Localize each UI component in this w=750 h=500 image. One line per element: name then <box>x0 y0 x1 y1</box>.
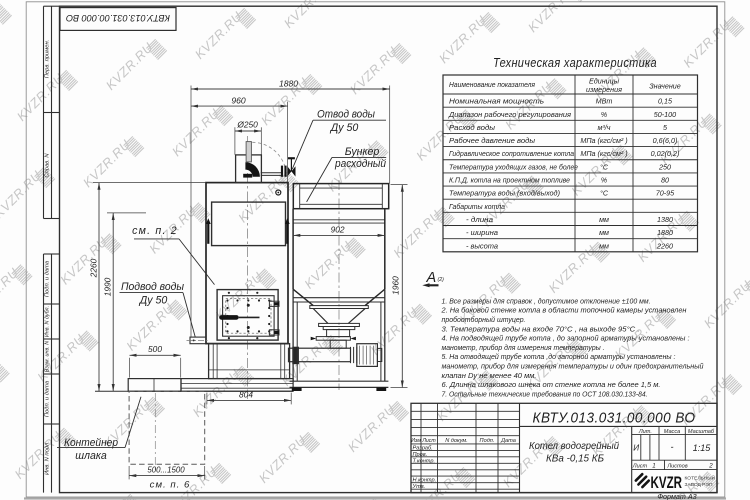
svg-text:ЗАВОД РЭП: ЗАВОД РЭП <box>685 482 713 488</box>
svg-text:Разраб.: Разраб. <box>413 445 433 451</box>
svg-text:мм: мм <box>599 215 609 224</box>
svg-text:Подп.: Подп. <box>480 438 495 444</box>
svg-text:%: % <box>601 176 608 185</box>
svg-text:расходный: расходный <box>334 158 386 170</box>
svg-text:Техническая характеристика: Техническая характеристика <box>493 55 657 70</box>
svg-text:А: А <box>426 270 437 286</box>
svg-text:500...1500: 500...1500 <box>147 465 185 474</box>
svg-text:МПа (кгс/см² ): МПа (кгс/см² ) <box>580 136 627 145</box>
svg-text:Инв. N дубл.: Инв. N дубл. <box>45 306 51 337</box>
svg-text:250: 250 <box>658 162 671 171</box>
svg-text:50-100: 50-100 <box>654 110 676 119</box>
svg-text:Рабочее давление воды: Рабочее давление воды <box>449 136 536 145</box>
svg-text:°С: °С <box>600 162 609 171</box>
svg-text:Изм: Изм <box>411 438 421 444</box>
svg-text:Ø250: Ø250 <box>236 120 258 130</box>
svg-text:Масса: Масса <box>664 429 681 435</box>
svg-text:0,6(6,0): 0,6(6,0) <box>653 136 678 145</box>
svg-text:Перв. примен.: Перв. примен. <box>45 40 51 79</box>
svg-text:К.П.Д. котла на проектном топл: К.П.Д. котла на проектном топливе <box>449 176 570 185</box>
svg-text:902: 902 <box>331 225 345 235</box>
svg-text:4. На подводящей трубе котла: 4. На подводящей трубе котла , до запорн… <box>442 334 690 343</box>
svg-text:1:15: 1:15 <box>693 443 712 453</box>
svg-text:Подп. и дата: Подп. и дата <box>45 380 51 417</box>
svg-text:- высота: - высота <box>466 241 498 250</box>
svg-text:%: % <box>601 110 608 119</box>
svg-text:Гидравлическое сопротивление к: Гидравлическое сопротивление котла <box>449 149 574 158</box>
svg-text:Габариты котла: Габариты котла <box>449 202 505 211</box>
svg-text:МПа (кгс/см² ): МПа (кгс/см² ) <box>580 149 627 158</box>
svg-text:°С: °С <box>600 189 609 198</box>
svg-text:пробоотборный штуцер.: пробоотборный штуцер. <box>442 315 526 324</box>
svg-text:1960: 1960 <box>390 276 400 295</box>
svg-text:мм: мм <box>599 241 609 250</box>
svg-text:-: - <box>671 442 674 452</box>
svg-text:МВт: МВт <box>596 97 613 106</box>
svg-text:см. п. 2: см. п. 2 <box>132 225 178 237</box>
svg-text:Температура уходящих газов, не: Температура уходящих газов, не более <box>449 162 578 171</box>
svg-text:Дата: Дата <box>500 438 516 444</box>
svg-text:Утв.: Утв. <box>412 484 426 490</box>
svg-text:клапан Dу не менее 40 мм.: клапан Dу не менее 40 мм. <box>442 371 537 380</box>
svg-text:804: 804 <box>239 390 253 400</box>
svg-text:2: 2 <box>708 463 713 470</box>
svg-text:1380: 1380 <box>657 215 673 224</box>
svg-text:Справ. N: Справ. N <box>45 153 51 178</box>
svg-text:KVZR: KVZR <box>651 474 683 492</box>
svg-text:0,15: 0,15 <box>658 97 673 106</box>
svg-text:КВа -0,15 КБ: КВа -0,15 КБ <box>546 454 604 465</box>
svg-text:Масштаб: Масштаб <box>688 429 715 435</box>
svg-text:2260: 2260 <box>656 241 673 250</box>
svg-text:мм: мм <box>599 228 609 237</box>
svg-text:Подп. и дата: Подп. и дата <box>45 260 51 297</box>
svg-text:Диапазон рабочего регулировани: Диапазон рабочего регулирования <box>448 110 571 119</box>
svg-text:960: 960 <box>231 95 246 105</box>
svg-text:м³/ч: м³/ч <box>597 123 610 132</box>
svg-text:- ширина: - ширина <box>466 228 498 237</box>
svg-text:см. п. 6: см. п. 6 <box>150 480 191 491</box>
svg-text:Пров.: Пров. <box>413 452 428 458</box>
svg-text:1880: 1880 <box>279 78 298 88</box>
svg-text:Лит.: Лит. <box>638 429 652 435</box>
svg-text:Наименование показателя: Наименование показателя <box>449 80 535 89</box>
svg-text:Подвод воды: Подвод воды <box>121 281 184 293</box>
svg-text:80: 80 <box>661 176 669 185</box>
svg-text:Расход воды: Расход воды <box>449 123 496 132</box>
svg-text:70-95: 70-95 <box>656 189 675 198</box>
svg-text:Т.контр.: Т.контр. <box>413 458 436 464</box>
svg-text:Номинальная мощность: Номинальная мощность <box>449 97 544 106</box>
svg-text:- длина: - длина <box>466 215 493 224</box>
svg-text:2260: 2260 <box>88 258 98 278</box>
svg-text:Формат А3: Формат А3 <box>657 492 696 500</box>
svg-text:Бункер: Бункер <box>345 146 380 158</box>
svg-text:5. На отводящей трубе котла ,: 5. На отводящей трубе котла ,до запорной… <box>442 352 676 361</box>
svg-text:Котел водогрейный: Котел водогрейный <box>529 441 619 452</box>
svg-text:Ду 50: Ду 50 <box>139 294 168 306</box>
svg-text:Лист: Лист <box>632 463 648 469</box>
svg-text:7. Остальные технические треб: 7. Остальные технические требования по О… <box>442 389 648 398</box>
svg-text:Ду 50: Ду 50 <box>330 122 359 134</box>
svg-text:Лист: Лист <box>421 438 436 444</box>
svg-text:Контейнер: Контейнер <box>64 437 118 449</box>
svg-text:Листов: Листов <box>666 463 687 469</box>
svg-text:(2): (2) <box>438 277 445 283</box>
svg-text:Температура воды (вход/выход): Температура воды (вход/выход) <box>449 189 560 198</box>
svg-text:6. Длинна шлакового шнека от: 6. Длинна шлакового шнека от стенке котл… <box>442 380 661 389</box>
svg-text:манометр, прибор для измерени: манометр, прибор для измерения температу… <box>442 343 605 352</box>
svg-text:0,02(0,2): 0,02(0,2) <box>651 149 680 158</box>
svg-text:манометр, прибор для измерени: манометр, прибор для измерения температу… <box>442 362 705 371</box>
svg-text:КВТУ.013.031.00.000 ВО: КВТУ.013.031.00.000 ВО <box>533 410 696 426</box>
svg-text:Взам. инв. N: Взам. инв. N <box>45 341 51 373</box>
svg-text:шлака: шлака <box>75 450 107 462</box>
svg-text:1880: 1880 <box>657 228 673 237</box>
svg-text:измерения: измерения <box>586 85 622 94</box>
svg-text:3. Температура воды на входе: 3. Температура воды на входе 70°С , на в… <box>442 324 640 333</box>
svg-text:Н.контр.: Н.контр. <box>413 478 437 484</box>
svg-text:1. Все размеры для справок ,: 1. Все размеры для справок , допустимое … <box>442 296 651 305</box>
svg-text:1: 1 <box>652 463 655 470</box>
svg-text:Отвод воды: Отвод воды <box>317 109 375 121</box>
svg-text:Значение: Значение <box>649 82 681 91</box>
svg-text:И: И <box>633 444 639 453</box>
svg-text:N докум.: N докум. <box>445 438 468 444</box>
svg-text:1990: 1990 <box>103 277 113 296</box>
svg-text:500: 500 <box>148 344 162 354</box>
svg-text:Инв. N подл.: Инв. N подл. <box>45 441 51 475</box>
svg-text:КВТУ.013.031.00.000 ВО: КВТУ.013.031.00.000 ВО <box>66 13 170 23</box>
svg-text:2. На боковой стенке котла в: 2. На боковой стенке котла в области топ… <box>441 306 688 315</box>
